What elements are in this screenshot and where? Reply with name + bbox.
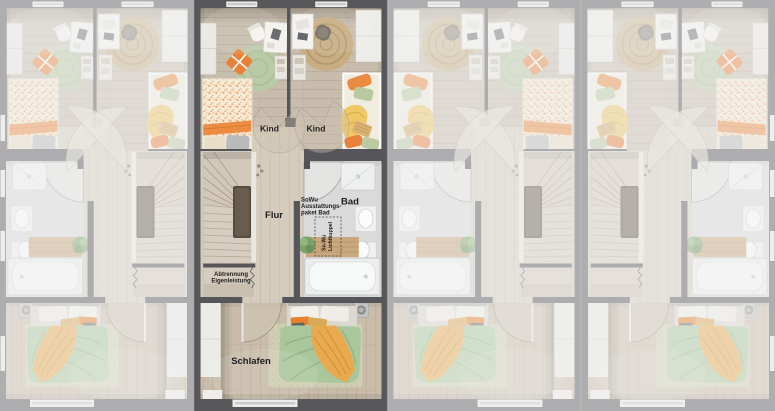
svg-text:Eigenleistung: Eigenleistung: [211, 279, 251, 285]
svg-text:paket Bad: paket Bad: [301, 210, 330, 216]
svg-text:Flur: Flur: [265, 210, 283, 221]
svg-text:Bad: Bad: [341, 197, 359, 208]
svg-text:Kind: Kind: [307, 124, 326, 134]
svg-text:Kind: Kind: [260, 124, 279, 134]
svg-text:Ausstattungs-: Ausstattungs-: [301, 204, 341, 210]
svg-text:SoWu: SoWu: [301, 198, 318, 204]
svg-text:Schlafen: Schlafen: [231, 356, 271, 367]
svg-text:Lichtkuppel: Lichtkuppel: [328, 221, 334, 251]
svg-text:So-Wu: So-Wu: [322, 235, 328, 251]
svg-text:Abtrennung: Abtrennung: [214, 272, 248, 278]
